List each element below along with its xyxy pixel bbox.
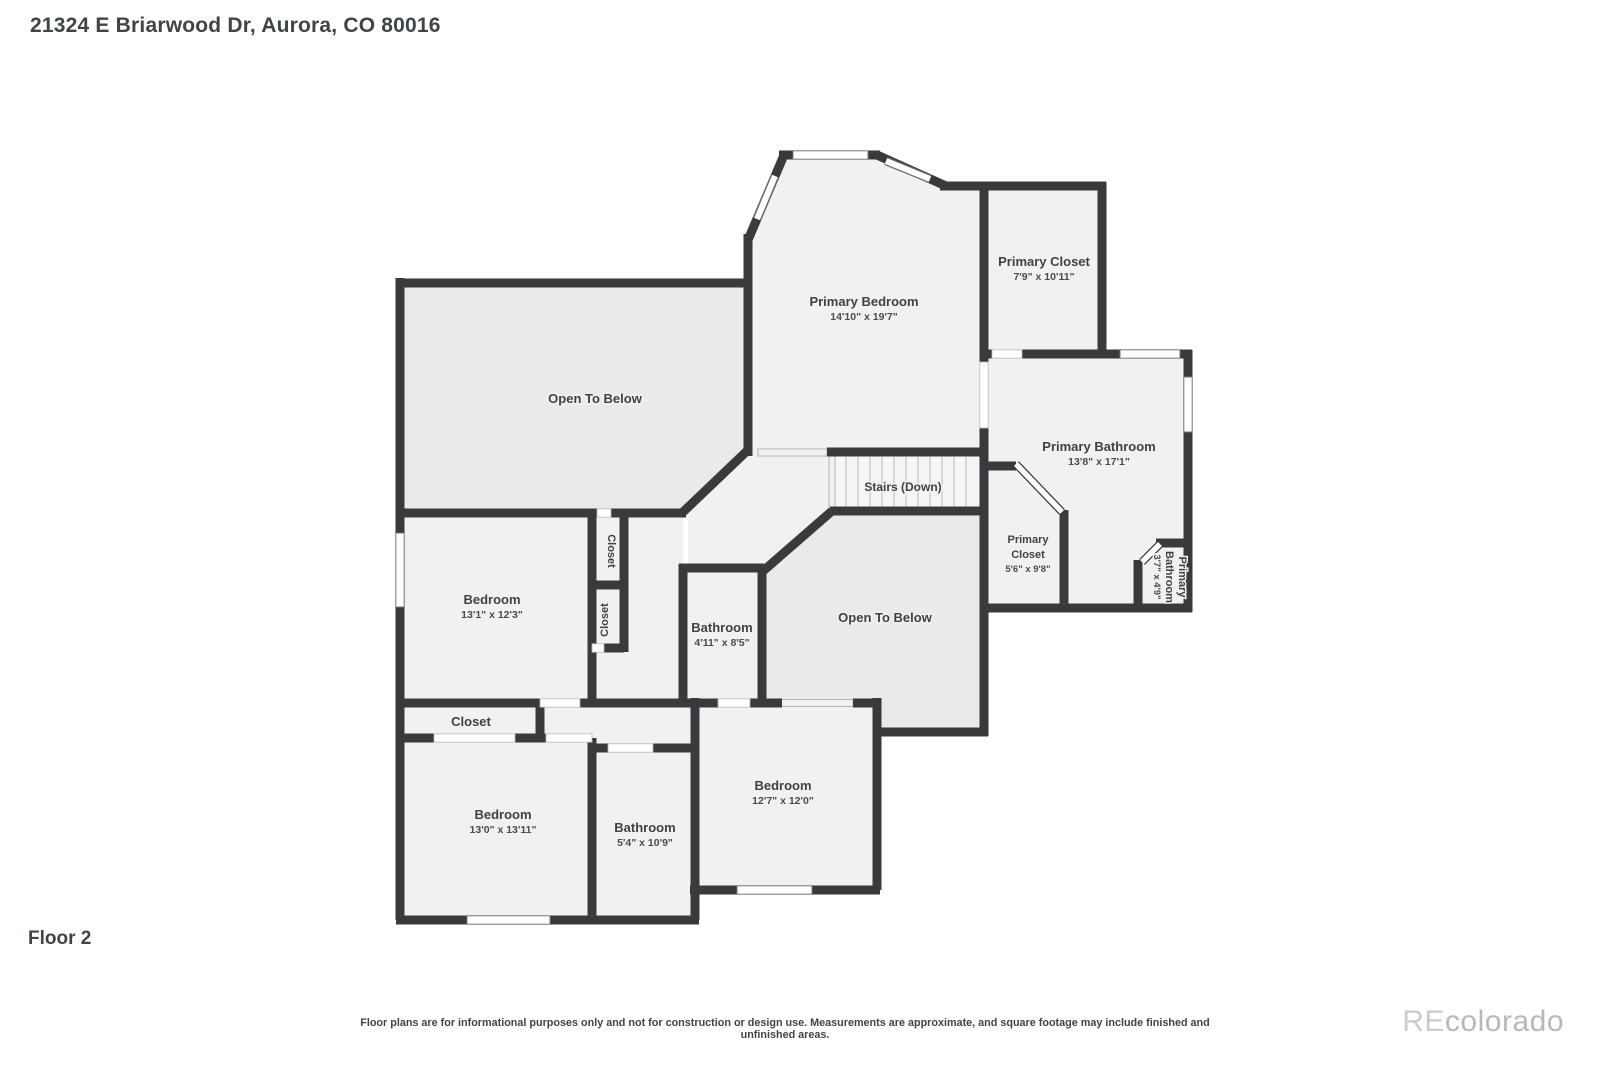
watermark: REcolorado <box>1402 1005 1564 1039</box>
watermark-re: RE <box>1402 1005 1445 1038</box>
room-dims-bathroom-2: 5'4" x 10'9" <box>617 837 673 849</box>
disclaimer-text: Floor plans are for informational purpos… <box>350 1017 1220 1041</box>
room-label-bathroom-middle: Bathroom <box>691 620 752 635</box>
room-label-primary-bedroom: Primary Bedroom <box>809 294 918 309</box>
room-dims-bedroom-2: 13'0" x 13'11" <box>470 824 537 836</box>
room-label-primary-closet-small-1: Primary <box>1008 534 1050 546</box>
room-label-primary-bathroom-large: Primary Bathroom <box>1042 439 1155 454</box>
room-label-bedroom-2: Bedroom <box>474 807 531 822</box>
floor-label: Floor 2 <box>28 928 91 950</box>
room-label-closet-a: Closet <box>605 534 617 568</box>
room-dims-primary-closet-large: 7'9" x 10'11" <box>1013 271 1074 283</box>
room-label-bathroom-2: Bathroom <box>614 820 675 835</box>
watermark-rest: colorado <box>1445 1005 1564 1038</box>
room-dims-primary-closet-small: 5'6" x 9'8" <box>1005 564 1050 575</box>
room-label-primary-bathroom-small: Primary Bathroom 3'7" x 4'9" <box>1151 551 1188 603</box>
room-dims-bedroom-1: 13'1" x 12'3" <box>461 609 523 621</box>
room-label-primary-closet-small-2: Closet <box>1011 549 1045 561</box>
svg-text:Bathroom: Bathroom <box>1163 551 1175 603</box>
floor-plan-canvas: Open To Below Primary Bedroom 14'10" x 1… <box>0 0 1600 1066</box>
room-dims-primary-bathroom-large: 13'8" x 17'1" <box>1068 456 1130 468</box>
room-label-open-below-central: Open To Below <box>838 610 933 625</box>
room-label-bedroom-3: Bedroom <box>754 778 811 793</box>
room-label-bedroom-1: Bedroom <box>463 592 520 607</box>
room-label-closet-hall: Closet <box>451 714 491 729</box>
room-dims-primary-bedroom: 14'10" x 19'7" <box>830 311 898 323</box>
svg-text:3'7" x 4'9": 3'7" x 4'9" <box>1151 554 1162 599</box>
room-dims-bathroom-middle: 4'11" x 8'5" <box>694 637 749 649</box>
room-label-primary-closet-large: Primary Closet <box>998 254 1090 269</box>
room-dims-bedroom-3: 12'7" x 12'0" <box>752 795 814 807</box>
room-label-stairs: Stairs (Down) <box>864 480 941 494</box>
room-label-open-below-upper: Open To Below <box>548 391 643 406</box>
svg-text:Primary: Primary <box>1176 557 1188 599</box>
room-label-closet-b: Closet <box>599 603 611 637</box>
